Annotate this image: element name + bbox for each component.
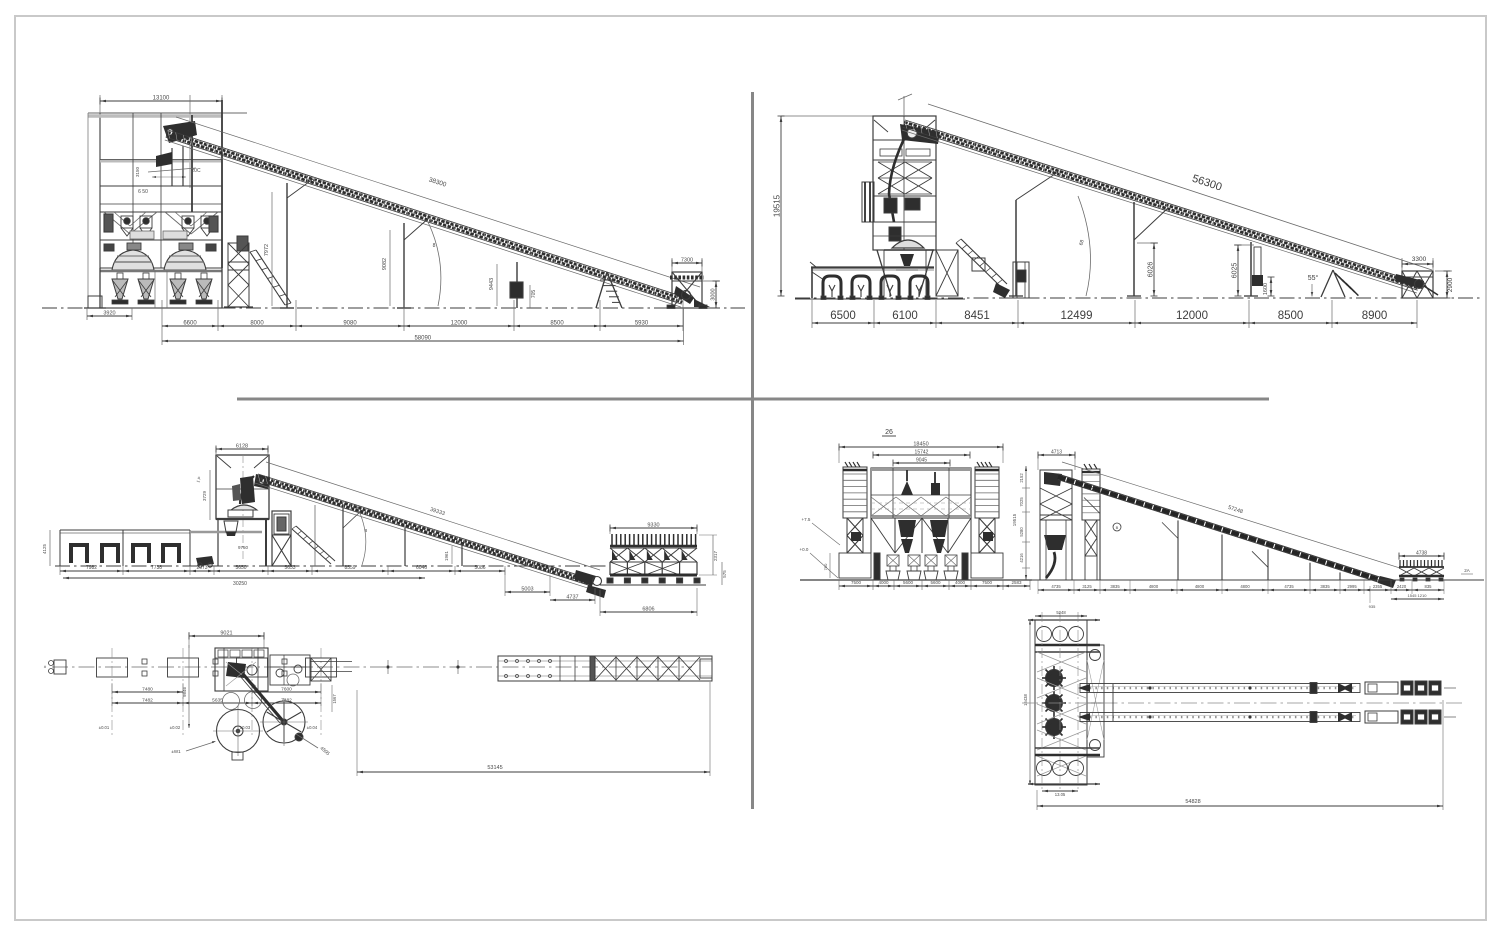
svg-text:9846: 9846 [182,686,187,697]
svg-text:7500: 7500 [982,580,993,585]
svg-text:4800: 4800 [1195,584,1205,589]
svg-text:6025: 6025 [1232,263,1239,279]
svg-text:8: 8 [433,243,436,249]
svg-text:4125: 4125 [42,543,47,554]
svg-text:705: 705 [531,290,537,299]
svg-text:5635: 5635 [212,698,223,704]
svg-text:20C: 20C [191,168,201,174]
svg-text:9021: 9021 [220,631,232,637]
svg-text:6128: 6128 [236,444,248,450]
svg-text:54828: 54828 [1185,799,1200,805]
svg-text:5248: 5248 [1056,610,1066,615]
svg-text:±0.04: ±0.04 [307,725,318,730]
svg-text:3150: 3150 [135,166,140,177]
svg-text:1567: 1567 [332,694,337,704]
svg-text:6 50: 6 50 [138,189,148,195]
svg-text:3300: 3300 [1412,256,1427,263]
svg-text:58090: 58090 [414,336,431,342]
svg-text:2995: 2995 [1347,584,1357,589]
svg-text:2073: 2073 [196,565,207,571]
svg-text:8500: 8500 [1278,310,1304,322]
svg-text:575: 575 [722,570,727,578]
svg-text:2583: 2583 [1011,580,1022,585]
svg-text:7300: 7300 [681,258,693,264]
svg-text:26: 26 [885,429,893,436]
svg-text:5600: 5600 [930,580,941,585]
svg-text:4000: 4000 [878,580,889,585]
svg-text:9443: 9443 [489,278,495,290]
svg-text:9045: 9045 [916,458,927,464]
svg-text:4735: 4735 [1284,584,1294,589]
svg-text:9082: 9082 [382,258,388,270]
svg-text:5600: 5600 [903,580,914,585]
svg-text:8900: 8900 [1362,310,1388,322]
svg-text:7480: 7480 [142,687,153,693]
svg-text:3835: 3835 [1320,584,1330,589]
svg-text:6600: 6600 [183,321,197,327]
svg-text:4738: 4738 [1416,551,1427,557]
svg-text:2152: 2152 [1019,473,1024,483]
svg-text:5280: 5280 [1019,527,1024,537]
svg-text:1961: 1961 [444,550,449,561]
svg-text:12499: 12499 [1061,310,1093,322]
svg-text:8451: 8451 [964,310,990,322]
svg-text:5086: 5086 [474,565,485,571]
svg-text:4800: 4800 [1149,584,1159,589]
svg-text:7482: 7482 [142,698,153,704]
svg-text:2317: 2317 [713,550,718,561]
svg-text:6500: 6500 [830,310,856,322]
svg-text:12000: 12000 [1176,310,1208,322]
svg-text:19515: 19515 [1012,513,1017,526]
svg-text:16438: 16438 [1023,694,1028,706]
svg-text:13100: 13100 [153,96,170,102]
svg-text:5650: 5650 [235,565,246,571]
svg-text:1545 1210: 1545 1210 [1408,593,1428,598]
svg-text:+0.0: +0.0 [800,547,809,552]
svg-text:7025: 7025 [1019,497,1024,507]
svg-text:±0.02: ±0.02 [170,725,181,730]
svg-text:±0.01: ±0.01 [99,725,110,730]
svg-text:8559: 8559 [344,565,355,571]
svg-text:2420: 2420 [1397,584,1407,589]
svg-text:935: 935 [1369,604,1376,609]
svg-text:9750: 9750 [238,545,249,550]
svg-text:1600: 1600 [1263,283,1269,295]
svg-text:7738: 7738 [151,565,162,571]
svg-text:5930: 5930 [635,321,649,327]
svg-text:3000: 3000 [711,288,717,300]
svg-text:9080: 9080 [343,321,357,327]
svg-text:15742: 15742 [915,450,929,456]
svg-text:6026: 6026 [1148,262,1155,278]
svg-text:7972: 7972 [264,244,270,256]
svg-text:8500: 8500 [550,321,564,327]
svg-text:3125: 3125 [1082,584,1092,589]
svg-text:2900: 2900 [1447,277,1454,292]
svg-text:2A: 2A [1464,568,1470,573]
svg-text:2355: 2355 [1373,584,1383,589]
svg-text:+7.5: +7.5 [802,517,811,522]
svg-text:8000: 8000 [250,321,264,327]
svg-text:5653: 5653 [284,565,295,571]
svg-text:B: B [1116,525,1119,530]
svg-text:4000: 4000 [955,580,966,585]
svg-text:9330: 9330 [647,523,659,529]
svg-text:19515: 19515 [773,194,782,217]
svg-text:6100: 6100 [892,310,918,322]
svg-text:3920: 3920 [103,311,115,317]
svg-text:18450: 18450 [913,442,928,448]
svg-text:5003: 5003 [521,587,533,593]
svg-text:3835: 3835 [1110,584,1120,589]
svg-text:7500: 7500 [851,580,862,585]
svg-text:13.05: 13.05 [1055,792,1066,797]
svg-text:4216: 4216 [1019,553,1024,563]
svg-text:835: 835 [1425,584,1433,589]
svg-text:55°: 55° [1308,274,1319,282]
svg-text:53145: 53145 [487,765,502,771]
svg-text:30250: 30250 [233,581,247,587]
svg-text:6046: 6046 [416,565,427,571]
svg-text:3729: 3729 [202,490,207,501]
svg-text:4735: 4735 [1051,584,1061,589]
svg-text:750: 750 [823,563,828,570]
svg-text:7982: 7982 [86,565,97,571]
svg-text:7600: 7600 [281,687,292,693]
svg-text:6806: 6806 [642,607,654,613]
svg-text:12000: 12000 [451,321,468,327]
svg-text:4713: 4713 [1051,450,1062,456]
svg-text:4800: 4800 [1240,584,1250,589]
svg-text:4737: 4737 [566,595,578,601]
svg-text:±W1: ±W1 [171,749,181,754]
